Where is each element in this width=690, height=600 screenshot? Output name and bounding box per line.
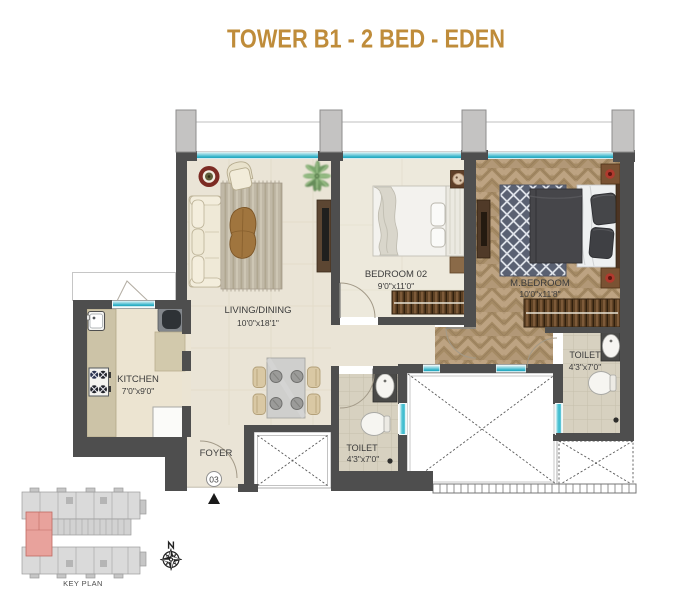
svg-text:4'3"x7'0": 4'3"x7'0" bbox=[569, 362, 601, 372]
svg-text:TOILET: TOILET bbox=[569, 350, 601, 360]
svg-text:KEY PLAN: KEY PLAN bbox=[63, 579, 103, 588]
svg-text:9'0"x11'0": 9'0"x11'0" bbox=[378, 281, 415, 291]
svg-text:TOILET: TOILET bbox=[346, 443, 378, 453]
svg-text:BEDROOM 02: BEDROOM 02 bbox=[365, 269, 427, 280]
svg-text:FOYER: FOYER bbox=[200, 448, 233, 459]
svg-text:4'3"x7'0": 4'3"x7'0" bbox=[347, 454, 379, 464]
svg-text:10'0"x18'1": 10'0"x18'1" bbox=[237, 318, 279, 328]
svg-text:10'0"x11'8": 10'0"x11'8" bbox=[519, 289, 560, 299]
svg-text:LIVING/DINING: LIVING/DINING bbox=[224, 305, 291, 316]
svg-text:03: 03 bbox=[209, 475, 219, 485]
svg-text:7'0"x9'0": 7'0"x9'0" bbox=[122, 386, 154, 396]
svg-text:TOWER B1 - 2 BED - EDEN: TOWER B1 - 2 BED - EDEN bbox=[227, 24, 505, 54]
svg-text:KITCHEN: KITCHEN bbox=[117, 374, 159, 385]
svg-text:M.BEDROOM: M.BEDROOM bbox=[510, 278, 570, 289]
